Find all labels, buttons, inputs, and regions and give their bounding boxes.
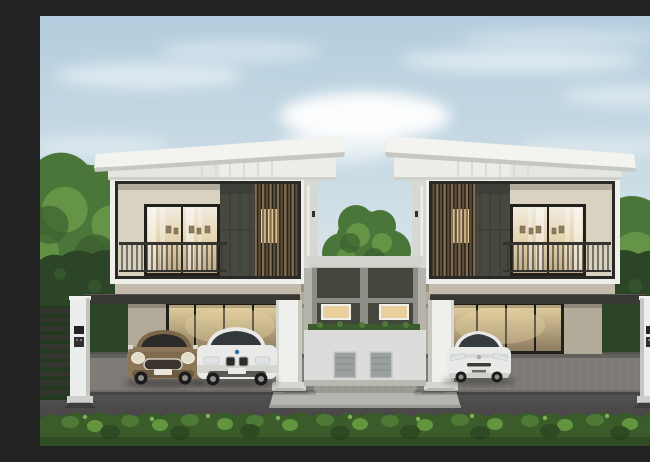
- front-shrub-hedge: [40, 412, 650, 446]
- hybrid-badge: [477, 355, 482, 360]
- headlight: [132, 353, 145, 364]
- gate-unit-left: [40, 296, 96, 408]
- mini-grille: [144, 359, 182, 370]
- center-lit-window: [379, 304, 409, 320]
- headlight: [255, 357, 270, 364]
- center-lit-window: [321, 304, 351, 320]
- center-service-wall: [304, 256, 426, 386]
- license-plate: [228, 368, 246, 374]
- architectural-rendering: [40, 16, 650, 446]
- kidney-grille: [226, 357, 235, 366]
- center-lower-wall: [304, 330, 426, 386]
- scene-canvas: [40, 16, 650, 446]
- headlight: [204, 357, 219, 364]
- meter-box: [370, 352, 392, 378]
- sedan-badge: [234, 349, 239, 354]
- meter-box: [334, 352, 356, 378]
- headlight: [182, 353, 195, 364]
- license-plate: [154, 369, 172, 375]
- kidney-grille: [239, 357, 248, 366]
